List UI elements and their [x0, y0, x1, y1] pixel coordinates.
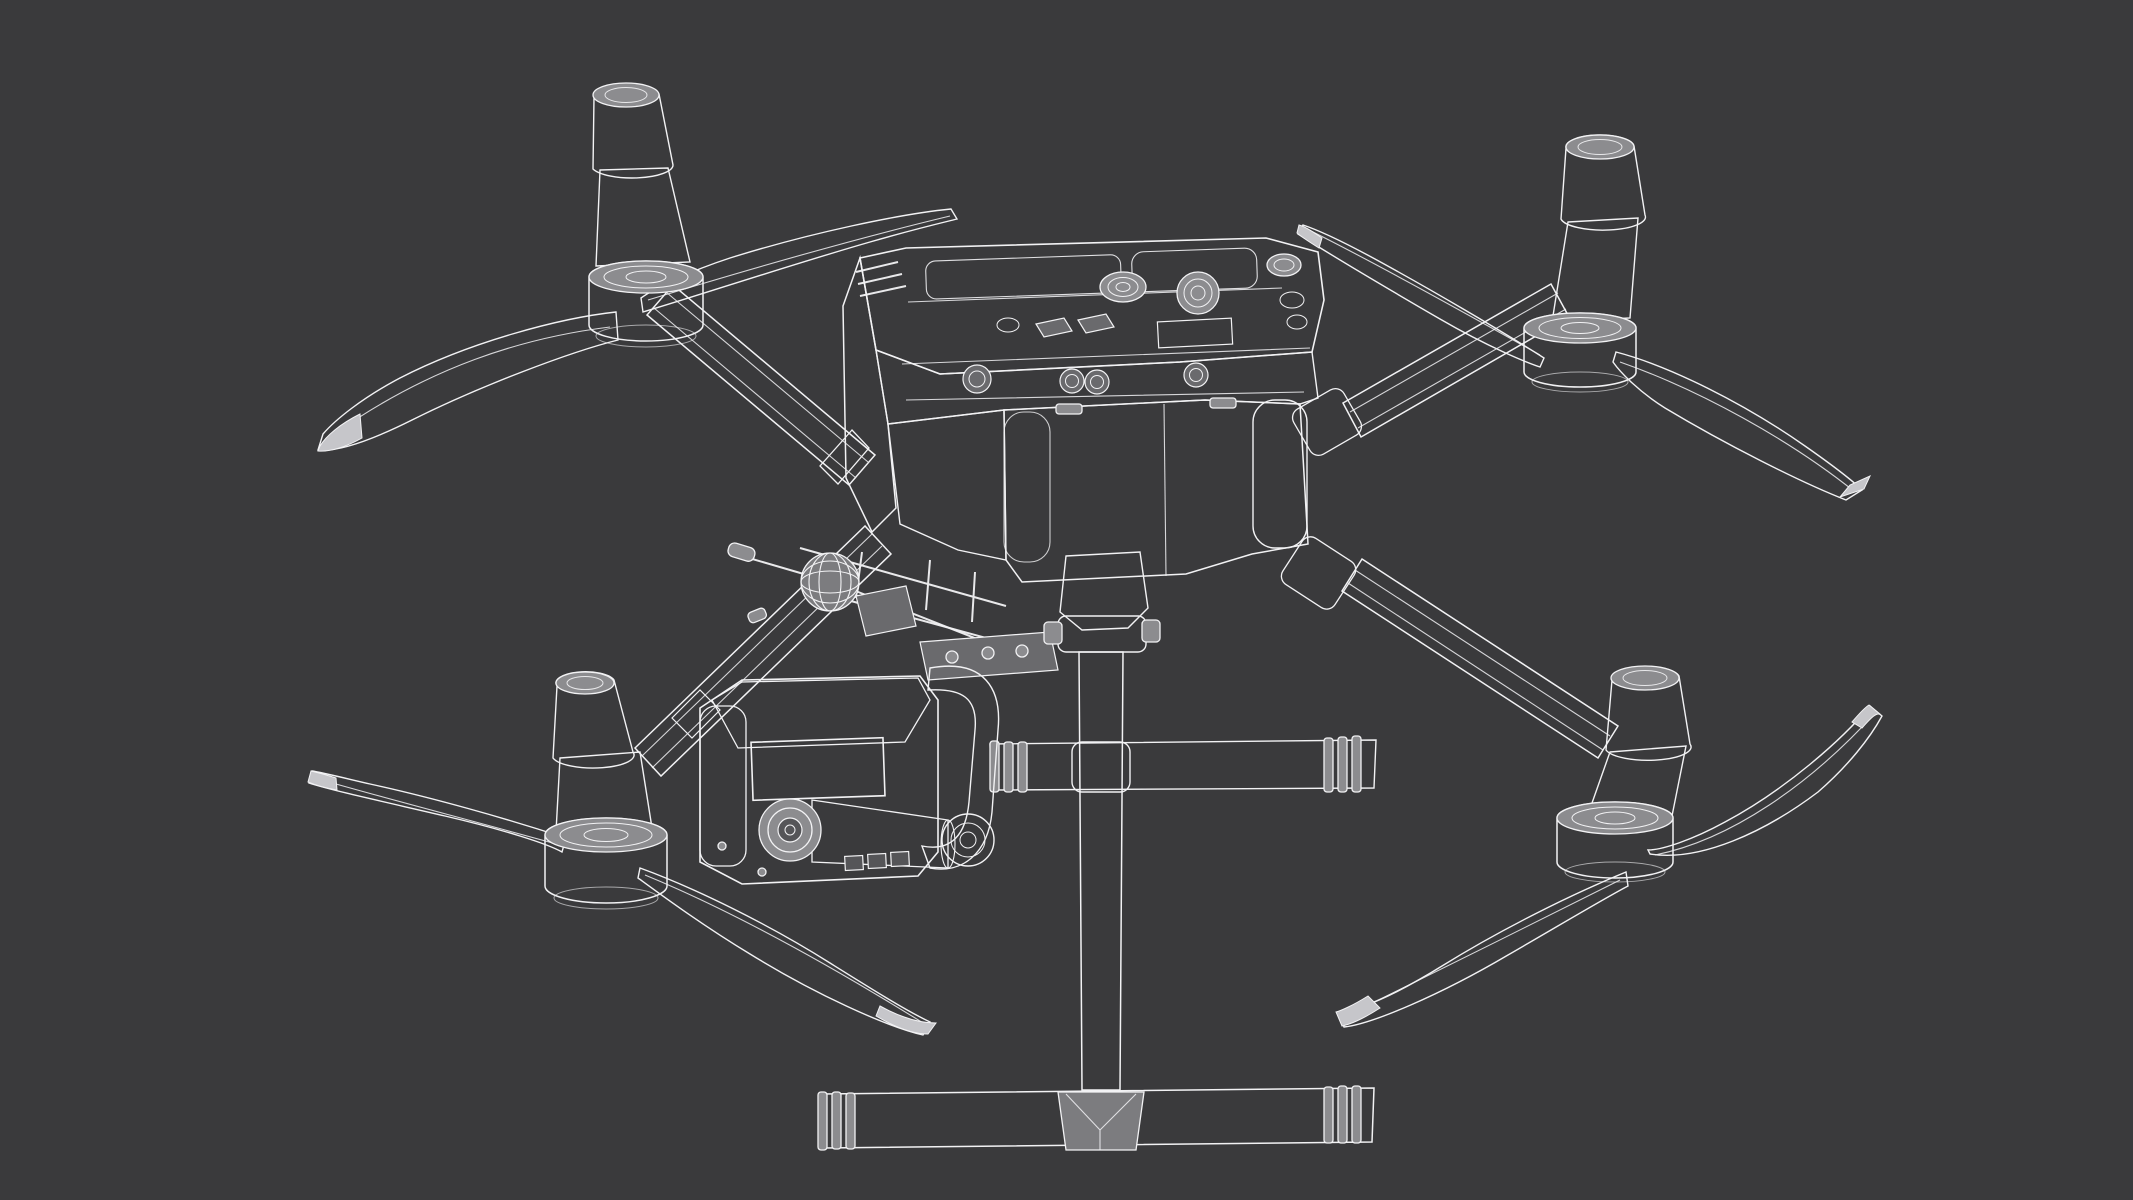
skid-end-ring [1004, 742, 1013, 792]
gps-dome [1100, 272, 1146, 302]
antenna-cone-cap [556, 672, 614, 694]
vision-sensor [963, 365, 991, 393]
antenna-ball [801, 553, 859, 611]
background [0, 0, 2133, 1200]
vision-sensor [1085, 370, 1109, 394]
vision-sensor [1184, 363, 1208, 387]
antenna-cone-cap [593, 83, 659, 107]
skid-end-ring [1018, 742, 1027, 792]
cooling-fan [1177, 272, 1219, 314]
skid-end-ring [1324, 738, 1333, 792]
collar-tab [1044, 622, 1062, 644]
skid-end-ring [818, 1092, 827, 1150]
screw [718, 842, 726, 850]
bottom-vent [845, 856, 864, 871]
skid-end-ring [1324, 1087, 1333, 1143]
damper [1016, 645, 1028, 657]
vision-sensor [1060, 369, 1084, 393]
skid-t-junction [1058, 1092, 1144, 1150]
antenna-cone-cap [1611, 666, 1679, 690]
drone-wireframe-render [0, 0, 2133, 1200]
skid-end-ring [1352, 1086, 1361, 1143]
damper [946, 651, 958, 663]
bottom-vent [891, 852, 910, 867]
battery-latch [1056, 404, 1082, 414]
skid-end-ring [832, 1092, 841, 1149]
collar-tab [1142, 620, 1160, 642]
skid-end-ring [1338, 737, 1347, 792]
screw [758, 868, 766, 876]
skid-end-ring [846, 1093, 855, 1149]
lens-glass [778, 818, 802, 842]
damper [982, 647, 994, 659]
rear-antenna-base [1267, 254, 1301, 276]
battery-latch [1210, 398, 1236, 408]
skid-end-ring [1352, 736, 1361, 792]
antenna-cone-cap [1566, 135, 1634, 159]
bottom-vent [868, 854, 887, 869]
skid-end-ring [1338, 1086, 1347, 1143]
render-stage [0, 0, 2133, 1200]
